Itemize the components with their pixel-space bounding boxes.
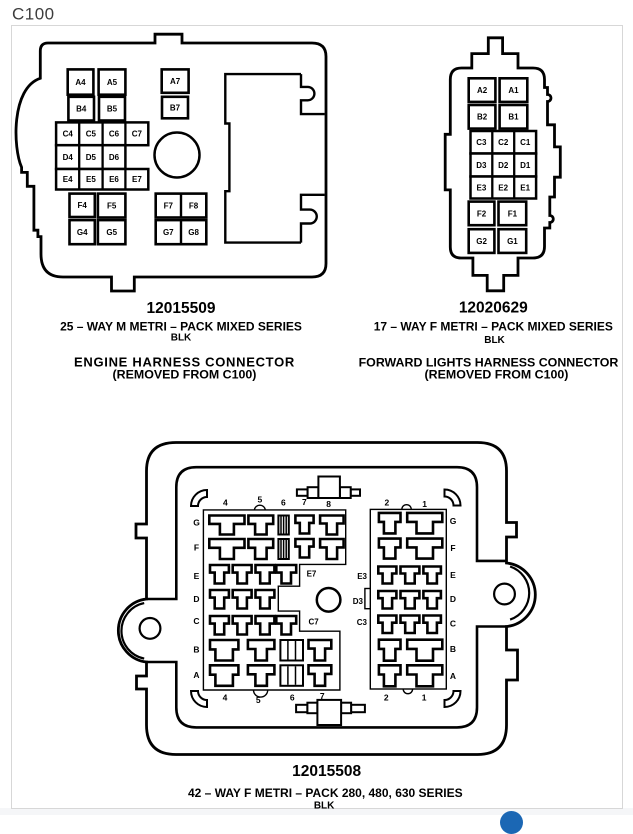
svg-text:C: C bbox=[450, 618, 456, 628]
svg-text:4: 4 bbox=[223, 692, 228, 702]
svg-text:C4: C4 bbox=[63, 130, 74, 139]
svg-text:BLK: BLK bbox=[484, 335, 505, 346]
svg-text:7: 7 bbox=[302, 497, 307, 507]
svg-text:B7: B7 bbox=[170, 104, 181, 113]
svg-text:E: E bbox=[450, 570, 456, 580]
svg-text:12020629: 12020629 bbox=[459, 300, 528, 317]
svg-text:A: A bbox=[193, 670, 199, 680]
svg-text:F7: F7 bbox=[164, 201, 174, 210]
svg-text:C: C bbox=[193, 616, 199, 626]
svg-text:D3: D3 bbox=[476, 161, 487, 170]
svg-text:A2: A2 bbox=[477, 86, 488, 95]
svg-text:E: E bbox=[194, 571, 200, 581]
svg-text:(REMOVED FROM C100): (REMOVED FROM C100) bbox=[113, 368, 257, 382]
svg-text:BLK: BLK bbox=[171, 333, 192, 344]
svg-text:G1: G1 bbox=[507, 237, 518, 246]
svg-text:2: 2 bbox=[384, 692, 389, 702]
svg-text:F5: F5 bbox=[107, 201, 117, 210]
svg-text:C100: C100 bbox=[12, 5, 55, 24]
svg-text:A4: A4 bbox=[75, 78, 86, 87]
svg-text:6: 6 bbox=[281, 498, 286, 508]
svg-text:C7: C7 bbox=[309, 617, 320, 626]
svg-text:D4: D4 bbox=[63, 153, 74, 162]
svg-text:1: 1 bbox=[422, 692, 427, 702]
svg-text:5: 5 bbox=[256, 695, 261, 705]
svg-text:E1: E1 bbox=[520, 183, 530, 192]
svg-text:F8: F8 bbox=[189, 201, 199, 210]
svg-text:17 – WAY F METRI – PACK MIXED: 17 – WAY F METRI – PACK MIXED SERIES bbox=[374, 320, 613, 334]
svg-text:D5: D5 bbox=[86, 153, 97, 162]
svg-text:E4: E4 bbox=[63, 175, 73, 184]
svg-text:2: 2 bbox=[385, 498, 390, 508]
svg-text:D: D bbox=[193, 594, 199, 604]
svg-text:G4: G4 bbox=[77, 228, 88, 237]
svg-text:7: 7 bbox=[320, 691, 325, 701]
svg-text:F4: F4 bbox=[78, 201, 88, 210]
svg-text:42 – WAY F METRI – PACK 280, 4: 42 – WAY F METRI – PACK 280, 480, 630 SE… bbox=[188, 786, 463, 800]
svg-text:G7: G7 bbox=[163, 228, 174, 237]
svg-text:E3: E3 bbox=[477, 183, 487, 192]
svg-text:B4: B4 bbox=[76, 105, 87, 114]
svg-text:E2: E2 bbox=[498, 183, 508, 192]
svg-text:E5: E5 bbox=[86, 175, 96, 184]
svg-text:G: G bbox=[450, 516, 457, 526]
svg-text:E3: E3 bbox=[357, 572, 367, 581]
svg-text:12015509: 12015509 bbox=[147, 300, 216, 317]
svg-text:F1: F1 bbox=[508, 209, 518, 218]
svg-text:25 – WAY M METRI – PACK MIXED: 25 – WAY M METRI – PACK MIXED SERIES bbox=[60, 320, 302, 334]
svg-text:C2: C2 bbox=[498, 138, 509, 147]
svg-text:12015508: 12015508 bbox=[292, 763, 361, 780]
svg-text:B1: B1 bbox=[508, 113, 519, 122]
svg-text:(REMOVED FROM C100): (REMOVED FROM C100) bbox=[425, 368, 569, 382]
svg-text:D1: D1 bbox=[520, 161, 531, 170]
svg-text:D3: D3 bbox=[353, 597, 364, 606]
svg-text:C1: C1 bbox=[520, 138, 531, 147]
svg-text:A: A bbox=[450, 671, 456, 681]
svg-text:8: 8 bbox=[326, 499, 331, 509]
svg-text:B2: B2 bbox=[477, 113, 488, 122]
svg-text:B5: B5 bbox=[107, 105, 118, 114]
svg-text:A7: A7 bbox=[170, 77, 181, 86]
svg-text:F: F bbox=[194, 543, 199, 553]
svg-text:C7: C7 bbox=[132, 130, 143, 139]
svg-text:G5: G5 bbox=[106, 228, 117, 237]
svg-text:5: 5 bbox=[258, 495, 263, 505]
svg-text:B: B bbox=[193, 644, 199, 654]
svg-text:G2: G2 bbox=[476, 237, 487, 246]
svg-text:A1: A1 bbox=[508, 86, 519, 95]
svg-text:G: G bbox=[193, 518, 200, 528]
svg-text:1: 1 bbox=[422, 499, 427, 509]
svg-text:F: F bbox=[450, 543, 455, 553]
svg-text:4: 4 bbox=[223, 498, 228, 508]
svg-text:E7: E7 bbox=[132, 175, 142, 184]
svg-text:A5: A5 bbox=[107, 78, 118, 87]
svg-text:C6: C6 bbox=[109, 130, 120, 139]
svg-text:D2: D2 bbox=[498, 161, 509, 170]
svg-text:C3: C3 bbox=[357, 618, 368, 627]
svg-text:F2: F2 bbox=[477, 209, 487, 218]
svg-text:E7: E7 bbox=[307, 569, 317, 578]
svg-text:BLK: BLK bbox=[314, 800, 335, 811]
svg-text:C3: C3 bbox=[476, 138, 487, 147]
svg-text:C5: C5 bbox=[86, 130, 97, 139]
svg-text:D6: D6 bbox=[109, 153, 120, 162]
svg-text:B: B bbox=[450, 644, 456, 654]
svg-text:6: 6 bbox=[290, 692, 295, 702]
svg-text:D: D bbox=[450, 594, 456, 604]
svg-text:E6: E6 bbox=[109, 175, 119, 184]
svg-text:G8: G8 bbox=[188, 228, 199, 237]
